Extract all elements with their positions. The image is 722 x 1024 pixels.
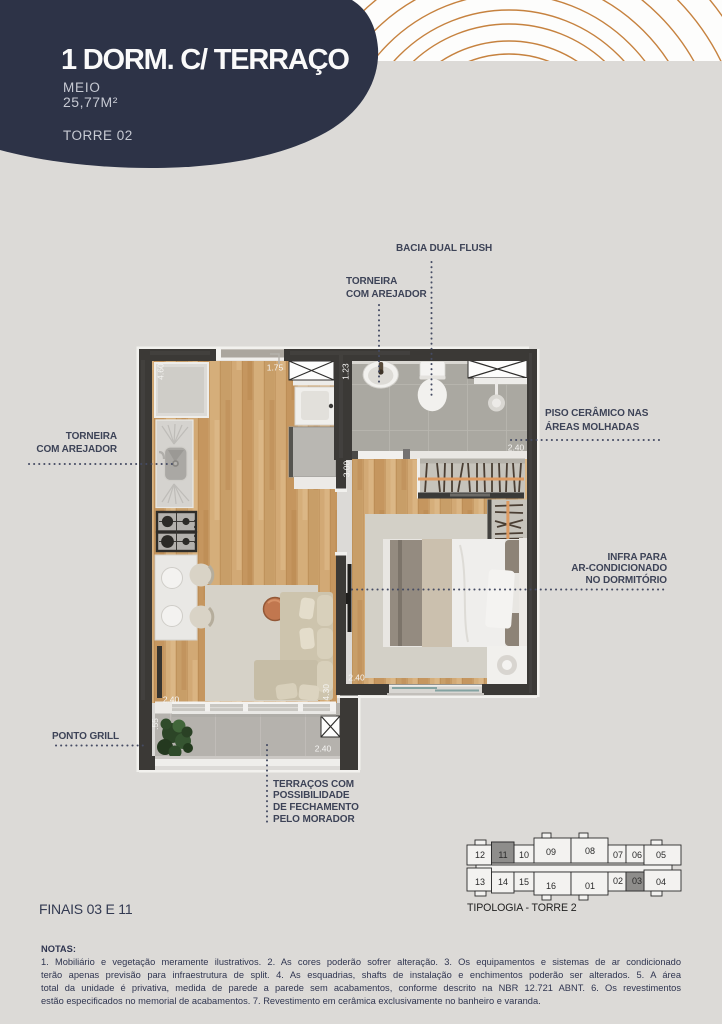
svg-text:4.30: 4.30 <box>321 684 331 701</box>
svg-text:2.40: 2.40 <box>348 673 365 683</box>
svg-text:1.23: 1.23 <box>341 363 351 380</box>
svg-text:15: 15 <box>519 877 529 887</box>
svg-text:10: 10 <box>519 850 529 860</box>
svg-text:04: 04 <box>656 877 666 887</box>
svg-text:09: 09 <box>546 847 556 857</box>
svg-text:3.00: 3.00 <box>342 460 352 477</box>
svg-text:13: 13 <box>475 877 485 887</box>
svg-text:03: 03 <box>632 876 642 886</box>
svg-text:05: 05 <box>656 850 666 860</box>
svg-text:.55: .55 <box>150 718 160 730</box>
svg-text:07: 07 <box>613 850 623 860</box>
svg-text:02: 02 <box>613 876 623 886</box>
svg-text:2.40: 2.40 <box>315 744 332 754</box>
svg-text:12: 12 <box>475 850 485 860</box>
svg-text:16: 16 <box>546 881 556 891</box>
svg-text:08: 08 <box>585 846 595 856</box>
svg-text:2.40: 2.40 <box>163 695 180 705</box>
svg-text:2.40: 2.40 <box>508 443 525 453</box>
svg-text:1.75: 1.75 <box>267 363 284 373</box>
svg-text:11: 11 <box>498 850 507 860</box>
svg-text:06: 06 <box>632 850 642 860</box>
svg-text:14: 14 <box>498 877 508 887</box>
svg-text:4.60: 4.60 <box>156 363 166 380</box>
svg-text:01: 01 <box>585 881 595 891</box>
